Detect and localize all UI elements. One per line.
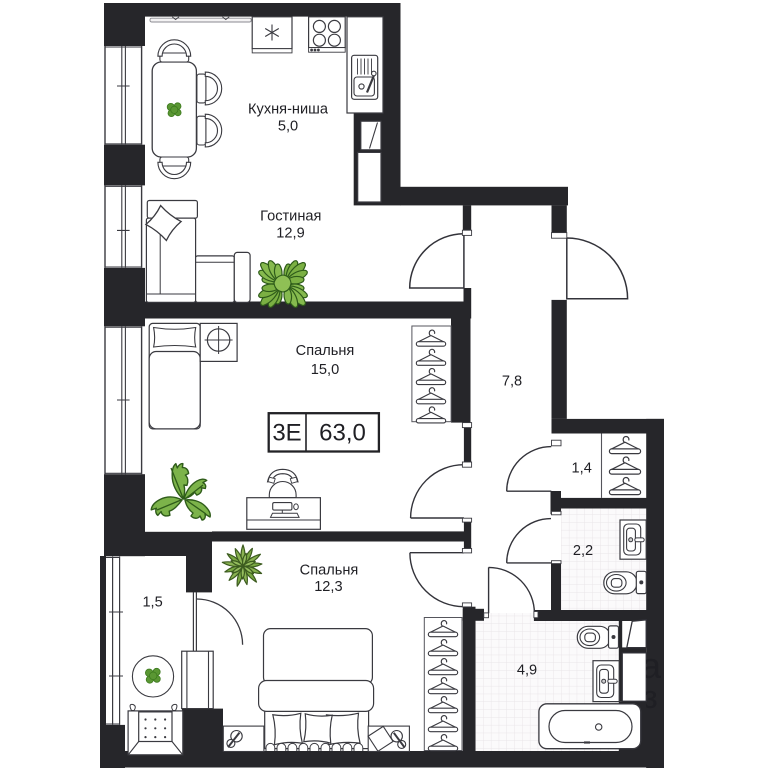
svg-text:1,5: 1,5 xyxy=(142,595,162,611)
svg-text:Спальня: Спальня xyxy=(296,343,355,359)
svg-text:12,3: 12,3 xyxy=(314,579,342,595)
svg-text:Гостиная: Гостиная xyxy=(260,209,321,225)
svg-text:Спальня: Спальня xyxy=(300,563,359,579)
svg-text:3Е: 3Е xyxy=(272,420,301,447)
svg-text:63,0: 63,0 xyxy=(319,420,366,447)
svg-text:2,2: 2,2 xyxy=(573,543,593,559)
svg-text:1,4: 1,4 xyxy=(572,461,592,477)
svg-text:15,0: 15,0 xyxy=(311,362,339,378)
svg-text:4,9: 4,9 xyxy=(517,663,537,679)
svg-text:5,0: 5,0 xyxy=(278,119,298,135)
svg-text:7,8: 7,8 xyxy=(502,374,522,390)
svg-text:Кухня-ниша: Кухня-ниша xyxy=(248,102,329,118)
svg-text:12,9: 12,9 xyxy=(276,226,304,242)
